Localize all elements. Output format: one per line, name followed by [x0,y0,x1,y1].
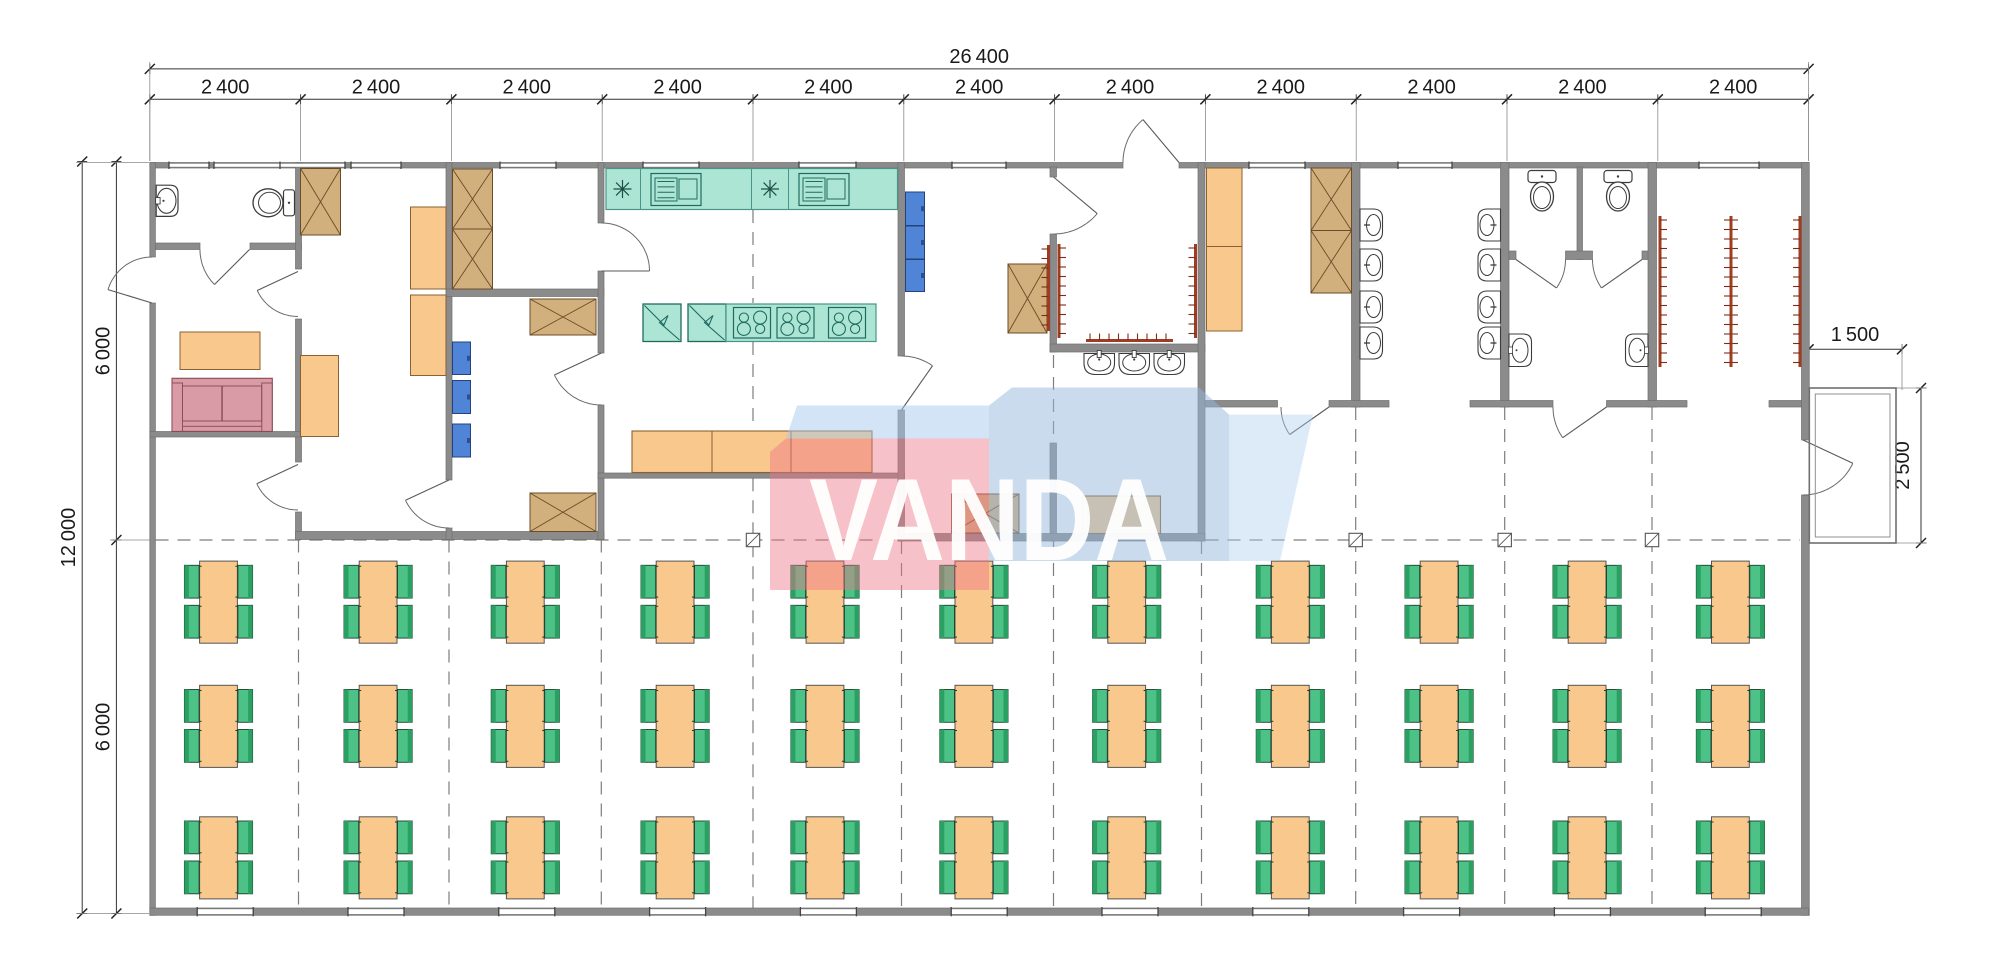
svg-text:2 400: 2 400 [1106,77,1155,99]
svg-text:2 400: 2 400 [1558,77,1607,99]
svg-text:2 400: 2 400 [503,77,552,99]
svg-text:2 400: 2 400 [1407,77,1456,99]
svg-text:2 400: 2 400 [1257,77,1306,99]
svg-text:2 400: 2 400 [955,77,1004,99]
svg-text:12 000: 12 000 [58,508,80,568]
svg-text:2 400: 2 400 [1709,77,1758,99]
svg-text:2 400: 2 400 [653,77,702,99]
svg-text:26 400: 26 400 [949,46,1009,68]
svg-text:VANDA: VANDA [809,454,1169,585]
svg-text:6 000: 6 000 [93,327,115,376]
svg-text:2 400: 2 400 [804,77,853,99]
svg-text:6 000: 6 000 [93,703,115,752]
svg-text:1 500: 1 500 [1831,324,1880,346]
svg-text:2 400: 2 400 [352,77,401,99]
svg-text:2 400: 2 400 [201,77,250,99]
